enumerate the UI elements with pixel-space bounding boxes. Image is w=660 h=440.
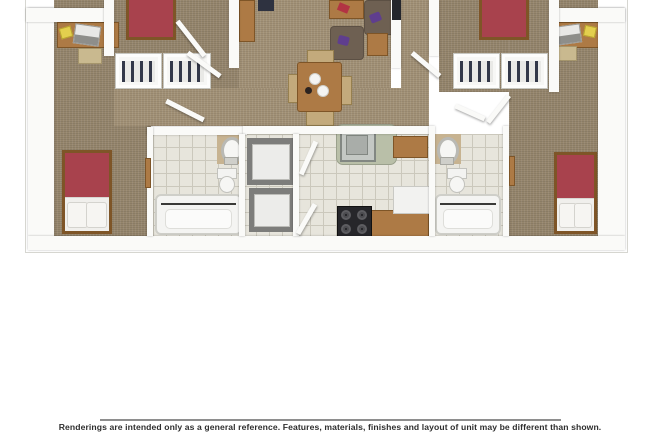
bed-topleft — [126, 0, 176, 40]
burner-icon — [357, 210, 367, 220]
disclaimer-text: Renderings are intended only as a genera… — [50, 422, 610, 432]
door-panel — [509, 156, 515, 186]
washer — [247, 138, 295, 185]
hanging-clothes — [122, 61, 155, 82]
wall — [26, 8, 106, 22]
bed-left — [62, 150, 112, 234]
burner-icon — [341, 224, 351, 234]
notepad-icon — [583, 25, 597, 38]
burner-icon — [341, 210, 351, 220]
wall — [429, 0, 439, 56]
dining-chair — [306, 110, 334, 126]
hanging-clothes — [460, 61, 493, 82]
door-leaf — [454, 104, 485, 122]
side-table — [367, 33, 388, 56]
wall — [549, 0, 559, 92]
plate-icon — [309, 73, 321, 85]
tv-icon — [392, 0, 401, 20]
toilet-bowl — [219, 176, 235, 193]
sink-icon — [224, 157, 238, 165]
closet — [502, 54, 547, 88]
floorplan-screenshot: Renderings are intended only as a genera… — [0, 0, 660, 440]
bathtub — [435, 194, 501, 235]
divider-line — [100, 419, 561, 421]
sink-icon — [440, 157, 454, 165]
wall — [429, 126, 435, 236]
laptop-icon — [73, 23, 102, 46]
closet — [164, 54, 210, 88]
wall — [293, 134, 299, 236]
bed-topright — [479, 0, 529, 40]
wall — [28, 236, 625, 250]
refrigerator — [393, 186, 430, 214]
plate-icon — [317, 85, 329, 97]
hallway-floor — [114, 88, 429, 126]
bed-right — [554, 152, 597, 234]
sink-basin — [346, 135, 368, 155]
wall — [28, 8, 54, 236]
bowl-icon — [305, 87, 312, 94]
bed-sheet — [65, 197, 109, 231]
dryer — [249, 188, 295, 232]
upper-cabinet — [393, 136, 428, 158]
stereo-icon — [258, 0, 274, 11]
pillow — [86, 202, 107, 228]
wall — [243, 126, 429, 134]
wall — [239, 134, 245, 236]
closet — [454, 54, 499, 88]
closet — [116, 54, 161, 88]
hanging-clothes — [508, 61, 541, 82]
burner-icon — [357, 224, 367, 234]
bathtub — [155, 194, 242, 235]
wall — [598, 8, 625, 236]
toilet-bowl — [449, 176, 465, 193]
door-panel — [145, 158, 151, 188]
wall — [558, 8, 625, 22]
desk-chair — [78, 48, 102, 64]
wall — [147, 127, 247, 135]
pillow — [574, 203, 592, 228]
wall — [229, 0, 239, 68]
door-leaf — [486, 94, 511, 124]
wall — [104, 0, 114, 56]
base-cabinet — [370, 210, 429, 237]
bed-sheet — [557, 198, 594, 231]
floorplan-render — [25, 0, 628, 253]
stove — [337, 206, 372, 239]
media-dresser — [239, 0, 255, 42]
